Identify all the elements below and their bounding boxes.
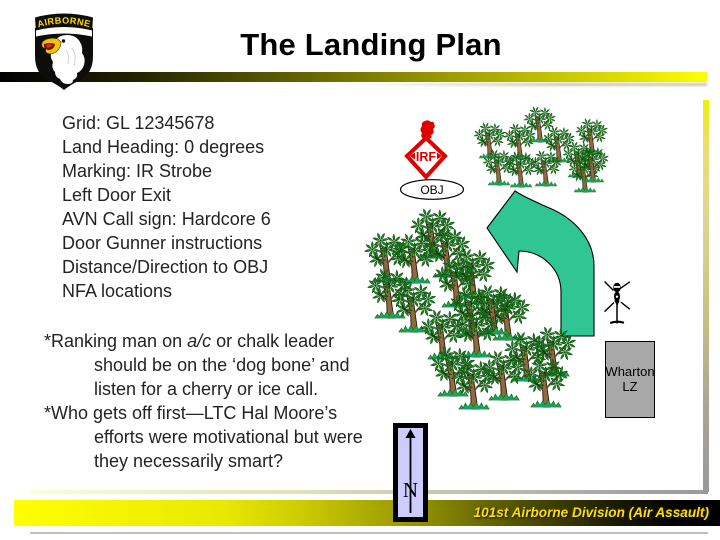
svg-text:OBJ: OBJ — [420, 183, 443, 197]
svg-text:IRF: IRF — [416, 150, 437, 164]
svg-text:N: N — [403, 478, 418, 502]
